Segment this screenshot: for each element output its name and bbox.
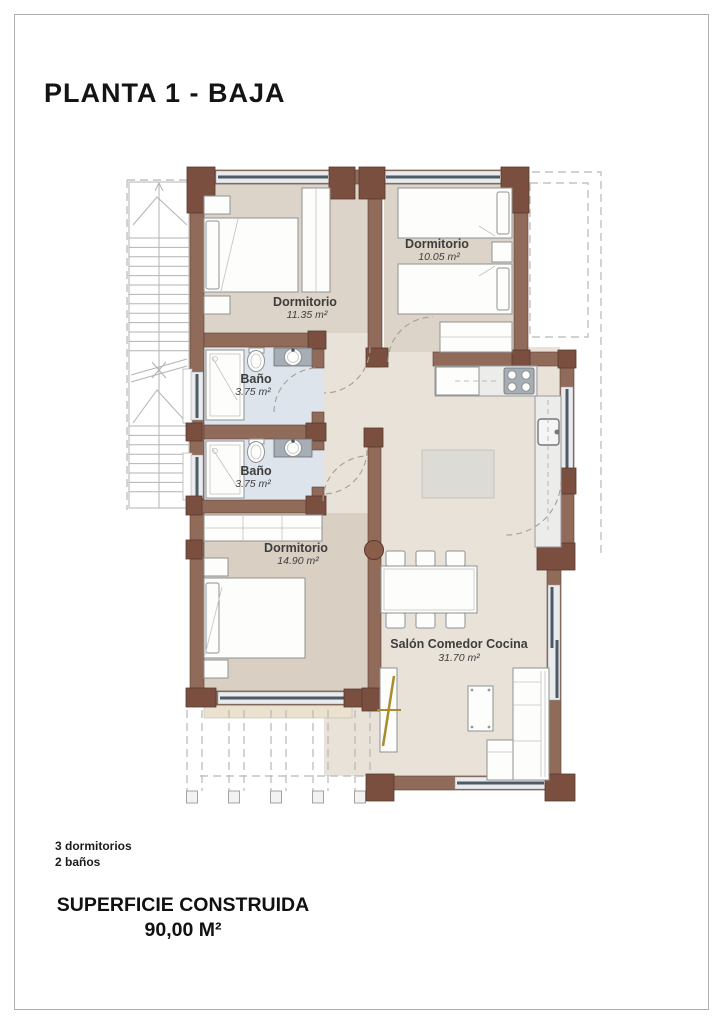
- terrace-inner-dashed: [530, 183, 588, 337]
- staircase: [127, 180, 190, 510]
- chair: [416, 551, 435, 566]
- sliding-door-window: [548, 585, 560, 700]
- room-area-label: 11.35 m²: [287, 309, 328, 321]
- floor-plan: Dormitorio 11.35 m² Dormitorio 10.05 m² …: [0, 0, 723, 1024]
- terrace-strip: [204, 705, 352, 718]
- chair: [386, 613, 405, 628]
- bedroom3-furniture: [204, 515, 322, 678]
- bath1-window: [183, 369, 203, 423]
- sofa-chaise: [487, 740, 513, 780]
- bedroom3-window: [218, 692, 346, 704]
- room-name-label: Dormitorio: [273, 295, 337, 309]
- bedroom1-window: [216, 171, 330, 183]
- pillow: [497, 192, 509, 234]
- dining-set: [381, 551, 477, 628]
- built-area-label: SUPERFICIE CONSTRUIDA: [30, 893, 336, 918]
- dining-table: [381, 566, 477, 613]
- nightstand: [204, 296, 230, 314]
- chair: [386, 551, 405, 566]
- burner: [522, 383, 530, 391]
- room-area-label: 14.90 m²: [277, 555, 319, 567]
- bath2-window: [183, 453, 203, 500]
- facts-block: 3 dormitorios 2 baños: [55, 838, 132, 870]
- room-area-label: 3.75 m²: [235, 478, 271, 490]
- burner: [522, 371, 530, 379]
- sofa-main: [513, 668, 549, 780]
- bedroom2-window: [384, 171, 502, 183]
- pillow: [206, 221, 219, 289]
- chair: [446, 613, 465, 628]
- nightstand: [204, 660, 228, 678]
- built-area-block: SUPERFICIE CONSTRUIDA 90,00 M²: [30, 893, 336, 943]
- bathrooms-count: 2 baños: [55, 854, 132, 870]
- burner: [508, 383, 516, 391]
- bed: [398, 264, 512, 314]
- kitchen-faucet: [555, 430, 560, 435]
- entrance-door: [377, 668, 401, 752]
- room-name-label: Dormitorio: [405, 237, 469, 251]
- room-area-label: 3.75 m²: [235, 386, 271, 398]
- room-name-label: Dormitorio: [264, 541, 328, 555]
- chair: [416, 613, 435, 628]
- faucet: [291, 439, 295, 443]
- faucet: [291, 348, 295, 352]
- room-name-label: Baño: [240, 464, 272, 478]
- room-name-label: Salón Comedor Cocina: [390, 637, 529, 651]
- round-column: [365, 541, 384, 560]
- built-area-value: 90,00 M²: [30, 918, 336, 943]
- nightstand: [492, 242, 512, 262]
- chair: [446, 551, 465, 566]
- nightstand: [204, 558, 228, 576]
- nightstand: [204, 196, 230, 214]
- kitchen-window: [561, 387, 573, 470]
- room-name-label: Baño: [240, 372, 272, 386]
- bed: [398, 188, 512, 238]
- room-area-label: 10.05 m²: [418, 251, 460, 263]
- pillow: [497, 268, 509, 310]
- bedrooms-count: 3 dormitorios: [55, 838, 132, 854]
- kitchen-island: [422, 450, 494, 498]
- burner: [508, 371, 516, 379]
- room-area-label: 31.70 m²: [438, 652, 480, 664]
- coffee-table: [468, 686, 493, 731]
- shower: [206, 350, 244, 420]
